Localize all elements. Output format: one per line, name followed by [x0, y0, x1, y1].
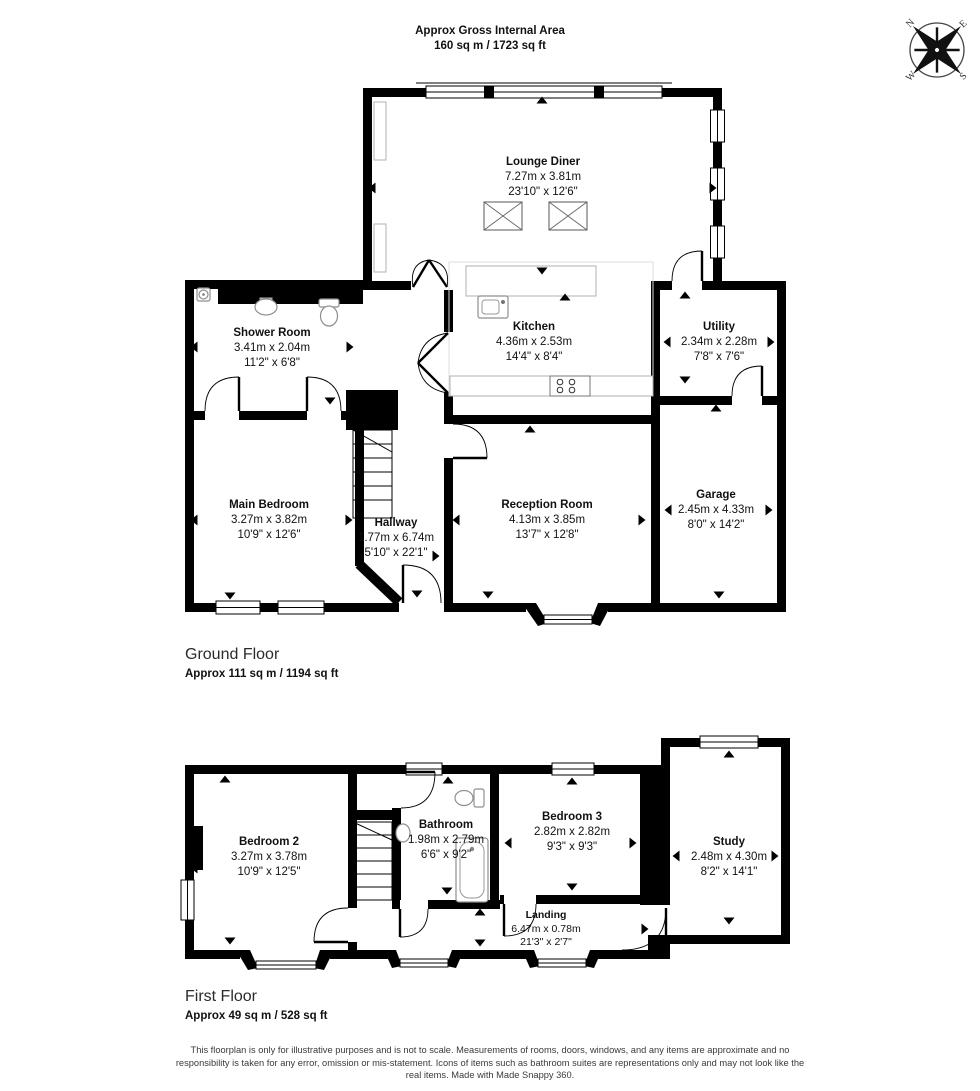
- stove-icon: [550, 376, 590, 396]
- room-dims-imperial: 11'2" x 6'8": [182, 356, 362, 371]
- room-dims-imperial: 8'0" x 14'2": [626, 518, 806, 533]
- room-name: Garage: [626, 488, 806, 503]
- room-name: Bedroom 3: [482, 810, 662, 825]
- room-dims-metric: 2.82m x 2.82m: [482, 825, 662, 840]
- room-dims-metric: 2.45m x 4.33m: [626, 503, 806, 518]
- disclaimer-text: This floorplan is only for illustrative …: [170, 1044, 810, 1082]
- room-name: Study: [639, 835, 819, 850]
- room-label-bedroom-3: Bedroom 3 2.82m x 2.82m 9'3" x 9'3": [482, 810, 662, 855]
- room-dims-metric: 6.47m x 0.78m: [456, 923, 636, 937]
- room-label-kitchen: Kitchen 4.36m x 2.53m 14'4" x 8'4": [444, 320, 624, 365]
- room-name: Shower Room: [182, 326, 362, 341]
- room-dims-imperial: 9'3" x 9'3": [482, 840, 662, 855]
- room-label-landing: Landing 6.47m x 0.78m 21'3" x 2'7": [456, 909, 636, 950]
- room-name: Kitchen: [444, 320, 624, 335]
- room-dims-metric: 2.34m x 2.28m: [629, 335, 809, 350]
- room-name: Main Bedroom: [179, 498, 359, 513]
- kitchen-island: [466, 266, 596, 296]
- room-label-garage: Garage 2.45m x 4.33m 8'0" x 14'2": [626, 488, 806, 533]
- room-label-reception-room: Reception Room 4.13m x 3.85m 13'7" x 12'…: [457, 498, 637, 543]
- room-dims-metric: 4.13m x 3.85m: [457, 513, 637, 528]
- room-dims-imperial: 14'4" x 8'4": [444, 350, 624, 365]
- floor-title: Ground Floor: [185, 646, 338, 664]
- room-dims-imperial: 10'9" x 12'5": [179, 865, 359, 880]
- toilet-icon: [455, 789, 484, 807]
- floor-area: Approx 49 sq m / 528 sq ft: [185, 1010, 328, 1022]
- skylight-icon: [484, 202, 587, 230]
- room-dims-imperial: 21'3" x 2'7": [456, 936, 636, 950]
- first-floor-caption: First Floor Approx 49 sq m / 528 sq ft: [185, 988, 328, 1022]
- toilet-icon: [319, 299, 339, 326]
- room-dims-imperial: 8'2" x 14'1": [639, 865, 819, 880]
- room-label-lounge-diner: Lounge Diner 7.27m x 3.81m 23'10" x 12'6…: [453, 155, 633, 200]
- ground-floor-caption: Ground Floor Approx 111 sq m / 1194 sq f…: [185, 646, 338, 680]
- room-name: Utility: [629, 320, 809, 335]
- room-name: Landing: [456, 909, 636, 923]
- room-dims-imperial: 7'8" x 7'6": [629, 350, 809, 365]
- room-name: Reception Room: [457, 498, 637, 513]
- room-dims-imperial: 23'10" x 12'6": [453, 185, 633, 200]
- room-label-shower-room: Shower Room 3.41m x 2.04m 11'2" x 6'8": [182, 326, 362, 371]
- room-dims-metric: 3.27m x 3.78m: [179, 850, 359, 865]
- room-name: Lounge Diner: [453, 155, 633, 170]
- room-dims-metric: 7.27m x 3.81m: [453, 170, 633, 185]
- floorplan-page: Approx Gross Internal Area 160 sq m / 17…: [0, 0, 980, 1091]
- room-label-utility: Utility 2.34m x 2.28m 7'8" x 7'6": [629, 320, 809, 365]
- kitchen-sink-icon: [478, 296, 508, 318]
- room-dims-metric: 3.41m x 2.04m: [182, 341, 362, 356]
- room-dims-imperial: 13'7" x 12'8": [457, 528, 637, 543]
- room-dims-imperial: 5'10" x 22'1": [306, 546, 486, 561]
- floor-area: Approx 111 sq m / 1194 sq ft: [185, 668, 338, 680]
- shower-icon: [197, 288, 210, 301]
- room-dims-metric: 4.36m x 2.53m: [444, 335, 624, 350]
- room-name: Bedroom 2: [179, 835, 359, 850]
- room-dims-metric: 2.48m x 4.30m: [639, 850, 819, 865]
- room-label-bedroom-2: Bedroom 2 3.27m x 3.78m 10'9" x 12'5": [179, 835, 359, 880]
- room-label-study: Study 2.48m x 4.30m 8'2" x 14'1": [639, 835, 819, 880]
- floor-title: First Floor: [185, 988, 328, 1006]
